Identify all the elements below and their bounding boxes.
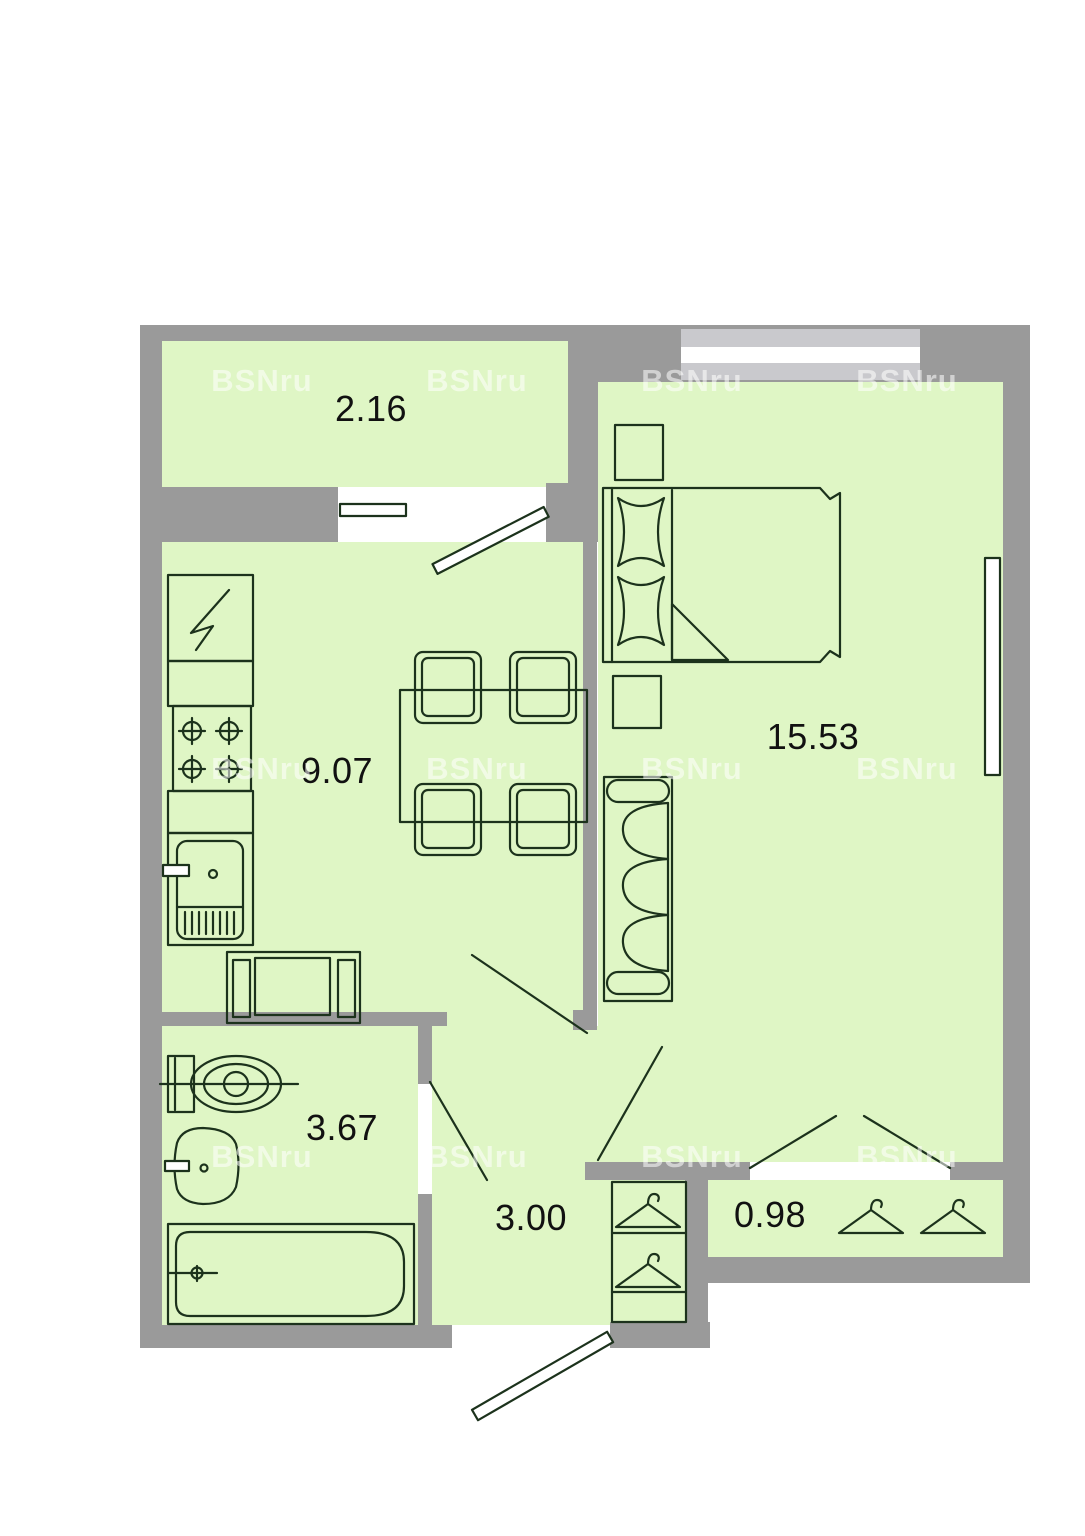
hanger-icon bbox=[839, 1200, 903, 1233]
area-label-balcony: 2.16 bbox=[335, 388, 407, 430]
area-label-hallway: 3.00 bbox=[495, 1197, 567, 1239]
floor-plan: 2.16 9.07 15.53 3.67 3.00 0.98 BSNru BSN… bbox=[0, 0, 1085, 1536]
door-swing-line bbox=[598, 1047, 662, 1160]
entry-door-leaf bbox=[472, 1332, 613, 1420]
nightstand-icon bbox=[615, 425, 663, 480]
bed-icon bbox=[603, 488, 840, 662]
bathtub-icon bbox=[168, 1224, 414, 1324]
area-label-bedroom: 15.53 bbox=[767, 716, 860, 758]
window-right-wall bbox=[985, 558, 1000, 775]
area-label-bathroom: 3.67 bbox=[306, 1107, 378, 1149]
pillow-icon bbox=[618, 577, 664, 645]
plan-symbols bbox=[0, 0, 1085, 1536]
door-swing-line bbox=[864, 1116, 950, 1168]
wardrobe-icon bbox=[612, 1182, 686, 1322]
blanket-fold bbox=[672, 604, 728, 660]
dining-table-icon bbox=[400, 690, 587, 822]
hanger-icon bbox=[616, 1194, 680, 1227]
pillow-icon bbox=[618, 498, 664, 566]
door-swing-line bbox=[430, 1082, 487, 1180]
stove-icon bbox=[173, 706, 251, 791]
hanger-icon bbox=[921, 1200, 985, 1233]
balcony-door-leaf bbox=[432, 507, 548, 574]
balcony-window-sill bbox=[340, 504, 406, 516]
area-label-closet: 0.98 bbox=[734, 1194, 806, 1236]
washbasin-icon bbox=[165, 1128, 239, 1204]
kitchen-sink-icon bbox=[163, 833, 253, 945]
counter-icon bbox=[168, 791, 253, 833]
door-swing-line bbox=[472, 955, 587, 1033]
hanger-icon bbox=[616, 1254, 680, 1287]
door-swing-line bbox=[750, 1116, 836, 1168]
area-label-kitchen: 9.07 bbox=[301, 750, 373, 792]
fridge-icon bbox=[168, 575, 253, 661]
sofa-icon bbox=[604, 777, 672, 1001]
toilet-icon bbox=[160, 1056, 298, 1112]
dining-chair-icon bbox=[415, 652, 576, 855]
washing-machine-icon bbox=[227, 952, 360, 1023]
counter-icon bbox=[168, 661, 253, 706]
nightstand-icon bbox=[613, 676, 661, 728]
